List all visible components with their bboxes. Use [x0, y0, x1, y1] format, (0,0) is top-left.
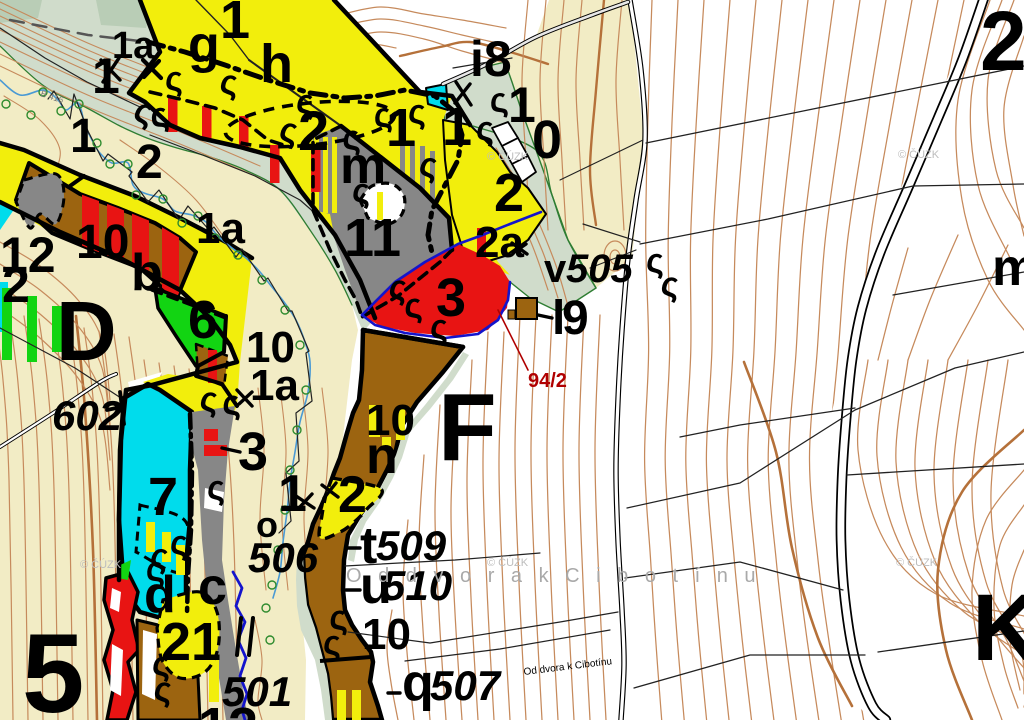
svg-text:© ČÚZK: © ČÚZK: [80, 558, 122, 571]
svg-text:ς: ς: [659, 265, 680, 304]
svg-text:3: 3: [238, 422, 268, 482]
svg-text:F: F: [438, 374, 497, 481]
svg-text:1: 1: [220, 0, 250, 50]
svg-text:ς: ς: [218, 63, 239, 102]
svg-text:6: 6: [188, 290, 218, 350]
svg-text:v: v: [544, 247, 567, 291]
svg-text:12: 12: [198, 697, 258, 720]
svg-text:m: m: [992, 239, 1024, 297]
svg-text:5: 5: [22, 611, 84, 720]
svg-text:1a: 1a: [196, 204, 245, 253]
svg-text:c: c: [198, 558, 227, 616]
svg-text:11: 11: [344, 208, 401, 268]
svg-text:ς: ς: [165, 60, 183, 98]
svg-text:2: 2: [298, 99, 329, 162]
svg-text:K: K: [972, 575, 1024, 681]
svg-text:507: 507: [430, 662, 502, 709]
svg-text:ς: ς: [198, 380, 219, 419]
svg-text:ς: ς: [170, 524, 188, 562]
svg-text:O d d v o r a k C i b: O d d v o r a k C i b o t í n u: [346, 565, 761, 587]
svg-text:q: q: [402, 654, 434, 712]
svg-text:506: 506: [248, 534, 319, 581]
svg-text:i8: i8: [470, 31, 512, 87]
svg-text:h: h: [260, 34, 293, 94]
svg-text:3: 3: [436, 268, 466, 328]
svg-text:n: n: [366, 427, 398, 485]
svg-text:94/2: 94/2: [528, 370, 567, 392]
svg-text:1: 1: [70, 110, 97, 163]
svg-text:ς: ς: [402, 287, 423, 326]
svg-text:ς: ς: [327, 599, 348, 638]
svg-text:21: 21: [161, 612, 221, 672]
svg-text:2: 2: [136, 136, 163, 189]
svg-text:2: 2: [980, 0, 1024, 88]
svg-text:© ČÚZK: © ČÚZK: [898, 148, 940, 161]
svg-text:ς: ς: [152, 670, 173, 709]
svg-text:2: 2: [338, 466, 367, 524]
svg-text:505: 505: [566, 247, 633, 291]
svg-text:1: 1: [278, 465, 307, 523]
svg-text:b: b: [131, 244, 163, 302]
svg-text:0: 0: [532, 110, 562, 170]
svg-text:ς: ς: [207, 469, 225, 507]
svg-text:1: 1: [386, 98, 416, 158]
svg-text:© ČÚZK: © ČÚZK: [487, 150, 529, 163]
svg-text:602: 602: [52, 392, 122, 439]
svg-text:D: D: [56, 284, 117, 378]
svg-text:10: 10: [362, 610, 411, 659]
svg-text:9: 9: [562, 292, 589, 345]
svg-text:© ČÚZK: © ČÚZK: [896, 556, 938, 569]
svg-text:7: 7: [148, 467, 178, 527]
svg-text:1: 1: [92, 48, 120, 104]
svg-text:g: g: [188, 16, 220, 74]
svg-text:2: 2: [494, 163, 524, 223]
svg-text:m: m: [340, 137, 386, 195]
svg-text:1: 1: [442, 97, 472, 157]
svg-text:10: 10: [76, 216, 129, 269]
svg-text:2: 2: [2, 257, 30, 313]
svg-text:© ČÚZK: © ČÚZK: [487, 556, 529, 569]
svg-text:1a: 1a: [250, 361, 299, 410]
svg-text:2a: 2a: [475, 218, 524, 267]
